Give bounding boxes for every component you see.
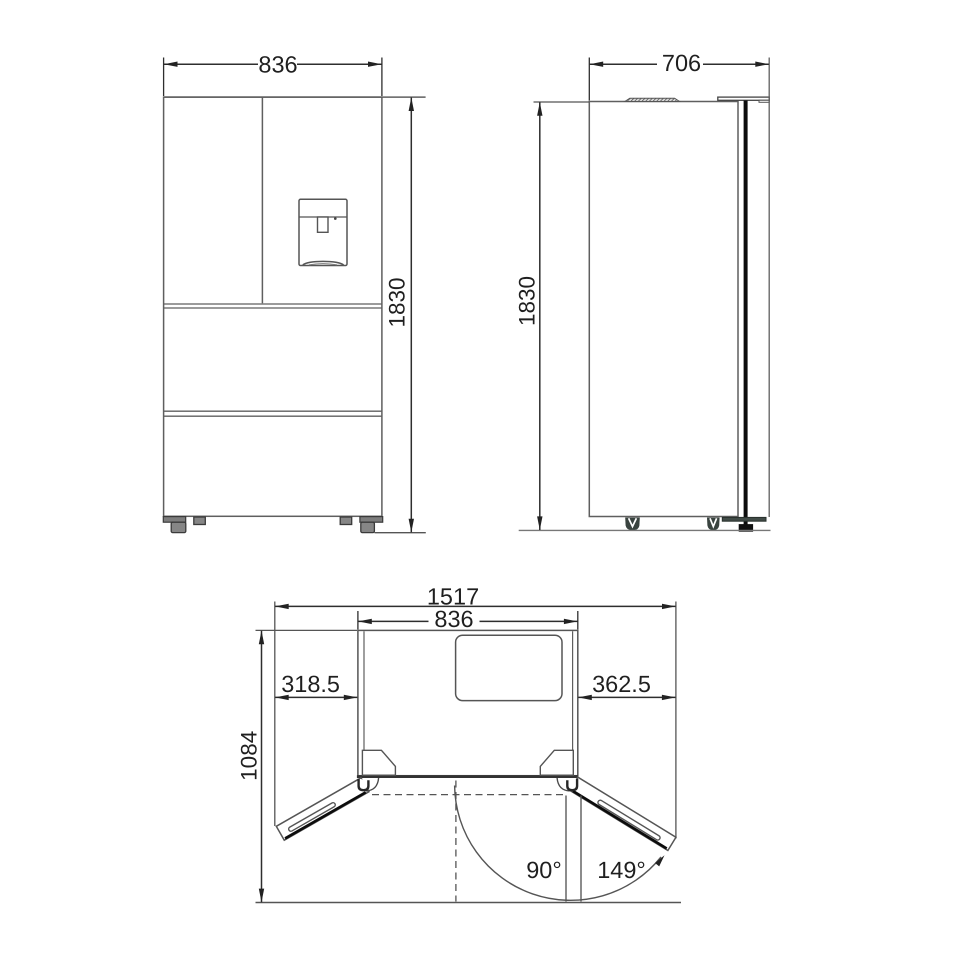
svg-text:90°: 90° <box>526 857 562 883</box>
svg-text:149°: 149° <box>597 857 646 883</box>
svg-text:706: 706 <box>662 50 701 76</box>
svg-text:1830: 1830 <box>385 277 410 327</box>
svg-text:318.5: 318.5 <box>281 671 340 697</box>
svg-text:1084: 1084 <box>237 731 262 781</box>
svg-text:362.5: 362.5 <box>592 671 651 697</box>
svg-text:1830: 1830 <box>515 276 540 326</box>
svg-text:836: 836 <box>434 606 473 632</box>
svg-text:836: 836 <box>258 52 297 78</box>
